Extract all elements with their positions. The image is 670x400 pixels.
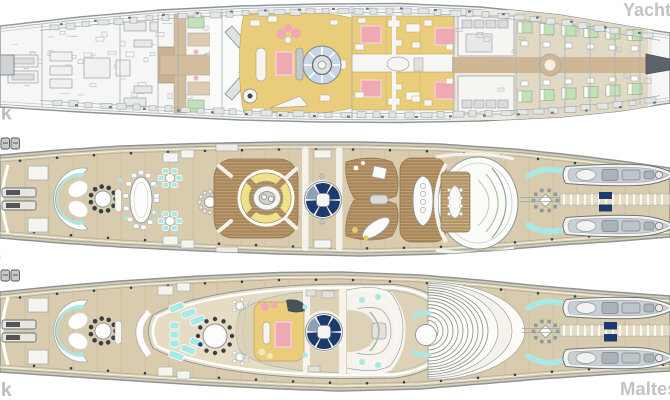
svg-text:Yacht: Yacht — [623, 0, 670, 20]
svg-text:ck: ck — [0, 379, 12, 400]
svg-text:Maltes: Maltes — [620, 378, 670, 399]
